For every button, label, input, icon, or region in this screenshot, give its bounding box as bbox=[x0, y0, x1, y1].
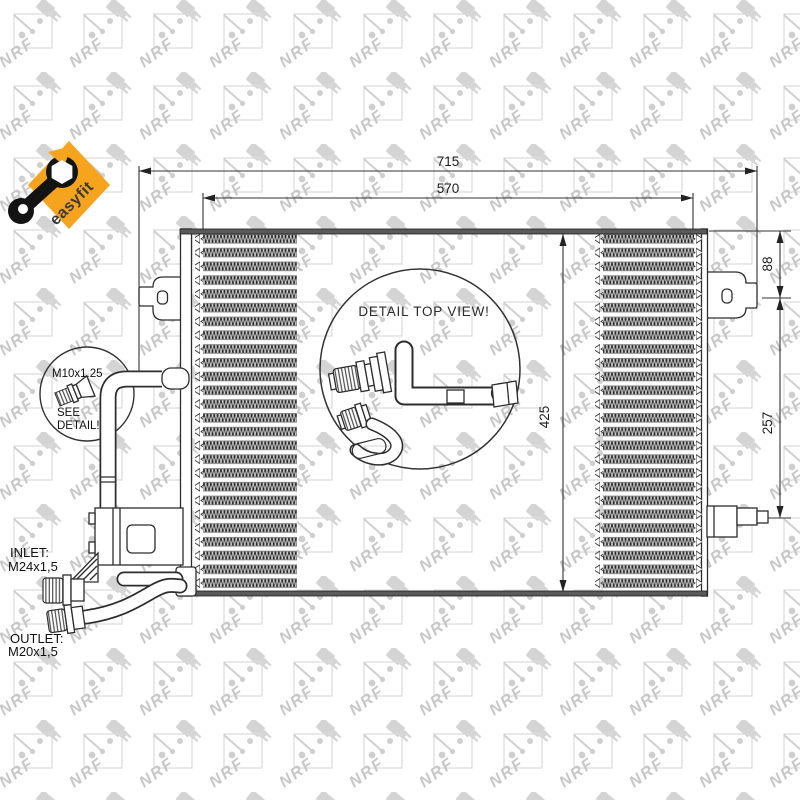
detail-top-view-title: DETAIL TOP VIEW! bbox=[358, 304, 489, 319]
right-core-fins bbox=[603, 234, 694, 591]
inlet-label: INLET: bbox=[10, 545, 49, 560]
dim-bracket-offset-label: 88 bbox=[760, 256, 775, 271]
left-core-serrated-edge bbox=[195, 234, 203, 591]
outlet-thread-label: M20x1,5 bbox=[8, 644, 58, 659]
dim-total-width-label: 715 bbox=[437, 154, 460, 169]
dim-core-width-label: 570 bbox=[437, 181, 460, 196]
pipe-union-flange bbox=[162, 368, 189, 389]
mounting-plate bbox=[492, 381, 518, 407]
inlet-fitting bbox=[43, 575, 84, 605]
dim-connector-offset-label: 257 bbox=[760, 412, 775, 435]
technical-drawing-page: NRF bbox=[0, 0, 800, 800]
right-core-serrated-edge-left bbox=[595, 234, 603, 591]
right-core-serrated-edge-right bbox=[694, 234, 702, 591]
thread-size-label: M10x1.25 bbox=[52, 368, 103, 380]
inlet-thread-label: M24x1,5 bbox=[8, 559, 58, 574]
left-core-fins bbox=[203, 234, 297, 591]
dim-core-height-label: 425 bbox=[537, 406, 552, 429]
condenser-technical-drawing: NRF bbox=[0, 0, 800, 800]
manifold-port-hole bbox=[127, 525, 155, 553]
core-top-plate bbox=[180, 229, 707, 234]
core-bottom-plate bbox=[180, 591, 707, 596]
pipe-clamp bbox=[447, 390, 464, 403]
right-side-plate bbox=[702, 229, 708, 596]
detail-label: DETAIL! bbox=[57, 420, 100, 432]
see-label: SEE bbox=[57, 407, 80, 419]
